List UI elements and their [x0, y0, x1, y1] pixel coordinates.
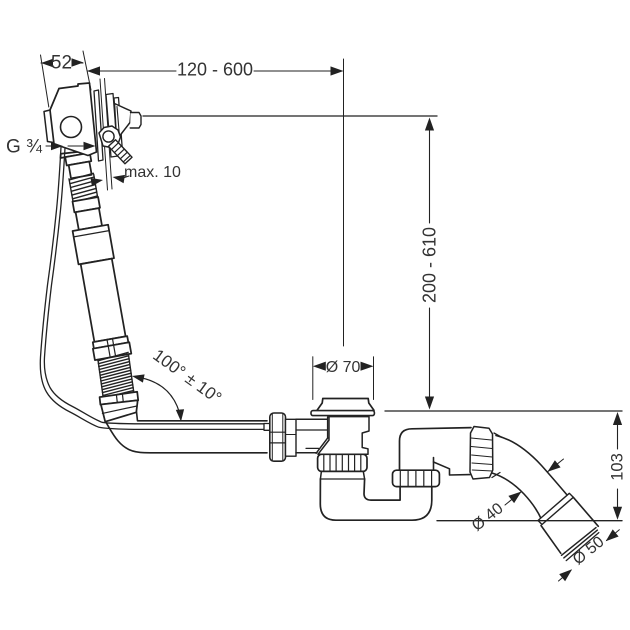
svg-text:52: 52	[51, 53, 72, 74]
svg-text:Ø 40: Ø 40	[469, 500, 507, 535]
svg-text:Ø 50: Ø 50	[570, 533, 608, 568]
svg-text:Ø 70: Ø 70	[326, 359, 361, 376]
svg-text:200 - 610: 200 - 610	[420, 227, 440, 303]
svg-text:103: 103	[609, 453, 627, 481]
svg-text:120 - 600: 120 - 600	[177, 60, 253, 80]
svg-text:100° ± 10°: 100° ± 10°	[149, 345, 225, 407]
svg-text:G ¾: G ¾	[6, 137, 43, 158]
svg-text:max. 10: max. 10	[124, 164, 181, 181]
